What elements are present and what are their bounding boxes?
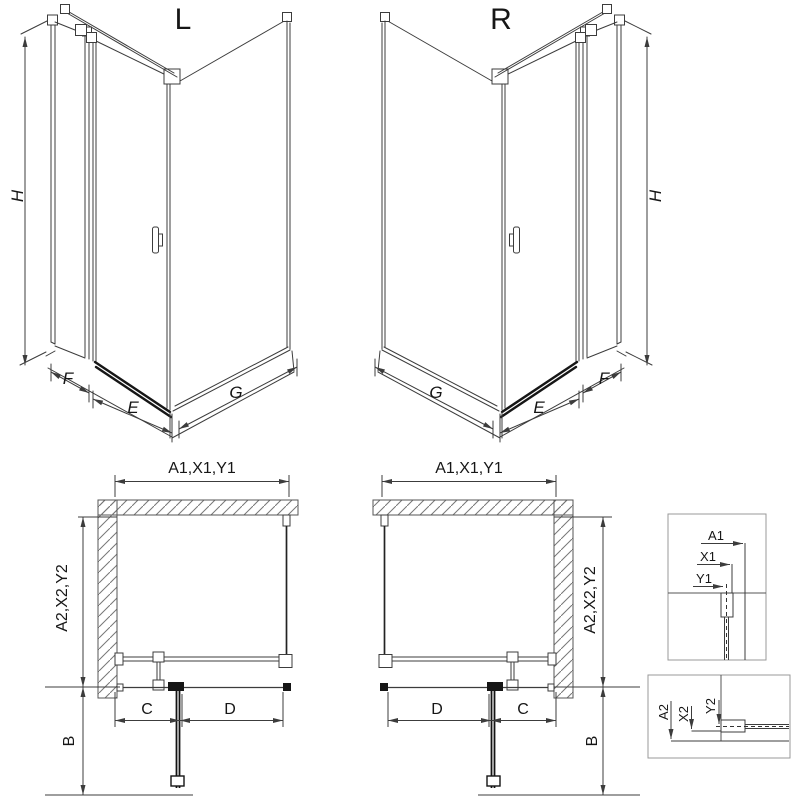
height-dim-label-left: H (8, 189, 27, 202)
detail-x1-label: X1 (700, 549, 716, 564)
door-segment-label-left: D (224, 701, 236, 718)
door-swing-label-left: B (61, 736, 78, 747)
fixed-segment-label-right: C (517, 701, 529, 718)
detail-a2-label: A2 (656, 704, 671, 720)
wall-hatch-side-left-plan (98, 500, 117, 698)
door-segment-label-right: D (431, 701, 443, 718)
drawing-canvas: L H F E G R H F E G A1,X1,Y1 A2,X2,Y2 C … (0, 0, 800, 800)
door-dim-label-right: E (533, 398, 545, 417)
shower-enclosure-technical-drawing: L H F E G R H F E G A1,X1,Y1 A2,X2,Y2 C … (0, 0, 800, 800)
variant-title-right: R (490, 3, 512, 36)
height-dim-label-right: H (646, 189, 665, 202)
detail-box-width-datums: A1 X1 Y1 (668, 514, 766, 660)
wall-hatch-top-right-plan (373, 500, 573, 515)
detail-a1-label: A1 (708, 528, 724, 543)
width-group-label-right: A1,X1,Y1 (435, 460, 503, 477)
wall-hatch-side-right-plan (554, 500, 573, 698)
iso-view-right: R H F E G (375, 3, 665, 442)
detail-y1-label: Y1 (696, 571, 712, 586)
depth-group-label-right: A2,X2,Y2 (582, 566, 599, 634)
fixed-segment-label-left: C (141, 701, 153, 718)
detail-box-depth-datums: A2 X2 Y2 (648, 675, 790, 758)
door-swing-label-right: B (584, 736, 601, 747)
side-panel-dim-label-right: G (429, 383, 442, 402)
return-panel-dim-label-right: F (599, 369, 611, 388)
side-panel-dim-label-left: G (229, 383, 242, 402)
plan-view-right: A1,X1,Y1 A2,X2,Y2 D C B (373, 460, 640, 795)
wall-hatch-top-left-plan (98, 500, 298, 515)
iso-view-left: L H F E G (8, 3, 297, 442)
width-group-label-left: A1,X1,Y1 (168, 460, 236, 477)
detail-y2-label: Y2 (703, 698, 718, 714)
door-dim-label-left: E (127, 398, 139, 417)
variant-title-left: L (175, 3, 192, 36)
return-panel-dim-label-left: F (63, 369, 75, 388)
plan-view-left: A1,X1,Y1 A2,X2,Y2 C D B (45, 460, 298, 795)
detail-x2-label: X2 (676, 706, 691, 722)
depth-group-label-left: A2,X2,Y2 (54, 564, 71, 632)
